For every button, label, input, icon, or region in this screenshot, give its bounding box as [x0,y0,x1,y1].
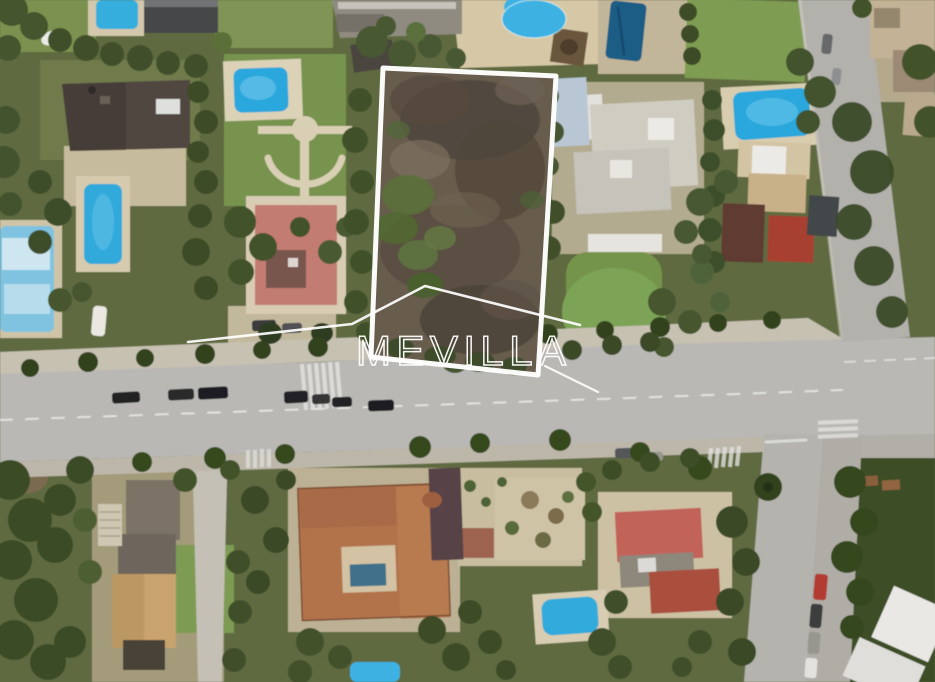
tree [674,220,698,244]
pool [541,596,599,636]
garden-path [258,126,352,134]
tree [28,230,52,254]
tree [478,630,502,654]
palm-tree [195,344,215,364]
blhouse-roof-shade [112,574,144,648]
hedge [194,110,218,134]
hedge [48,28,72,52]
tree [241,486,269,514]
tree [212,32,232,52]
plot-tree [374,212,418,244]
palm-tree [136,349,154,367]
tree [496,660,516,680]
blhouse-roof-upper [126,480,180,540]
tree [343,209,369,235]
tree [276,470,296,490]
tree [688,630,712,654]
tree [73,508,97,532]
garden-bush [535,532,551,548]
garden-dark-roof [428,467,463,560]
tree [588,628,616,656]
hedge [602,335,622,355]
tree [350,250,374,274]
pool-shine [92,194,114,250]
pool [350,662,400,682]
lawn-top [215,0,333,48]
blhouse-steps [98,504,122,546]
tree [20,12,48,40]
white-villa-skylight [610,160,632,178]
garden-bush [562,491,574,503]
watermark-text: MEVILLA [356,327,572,374]
plot-tree [520,191,544,209]
hedge [702,90,722,110]
tree-canopy [836,204,872,240]
tree-canopy [850,150,894,194]
hedge [700,152,720,172]
aerial-scene: MEVILLA [0,0,935,682]
tree-canopy [876,296,908,328]
garden-bush [481,497,491,507]
palm-tree [308,337,328,357]
tree [672,657,692,677]
tree [446,48,466,68]
palm-tree [549,429,571,451]
tree [263,527,289,553]
tree [44,484,76,516]
redhouse-panel [807,195,840,237]
lap-pool [605,0,647,61]
car [284,390,309,403]
tree [66,456,94,484]
tree [48,288,72,312]
tree [850,508,878,536]
tree [834,466,866,498]
garden-bush [497,477,507,487]
hedge [184,54,208,78]
tree [732,548,760,576]
palm-tree [78,352,98,372]
parked-car [807,632,821,655]
tree [78,560,102,584]
white-villa-terrace [588,234,662,252]
hedge [127,45,153,71]
tree [846,578,874,606]
palapa-peak [560,39,578,55]
garden-path [300,140,309,202]
tree [290,217,310,237]
tree [608,655,632,679]
palm-tree [253,341,271,359]
tree [220,460,240,480]
tree [344,290,368,314]
pink-building-dot [288,258,298,267]
stop-line [766,440,806,442]
tree [376,16,396,36]
hedge [187,141,209,163]
hedge [703,119,725,141]
tree [226,550,250,574]
hedge [683,47,701,65]
tree [296,628,324,656]
tree [648,288,676,316]
hedge [194,276,218,300]
pool-cover [4,284,50,314]
tree [318,240,342,264]
blhouse-garage [123,640,165,670]
tree [692,244,712,264]
tree [328,645,352,669]
tree [348,88,372,112]
tree [246,570,270,594]
plot-scrub-dark [390,75,470,125]
white-van [91,305,108,336]
hedge [680,448,700,468]
tree [72,282,92,302]
villa2-court-pool [350,563,387,586]
tree [388,40,416,68]
palm-tree [409,436,431,458]
tree [406,22,426,42]
car [821,34,833,55]
villa1-skylight [156,99,180,114]
tree [249,233,277,261]
car [168,388,195,400]
tree [228,259,254,285]
tree [54,626,86,658]
chimney [88,86,96,94]
tree [173,468,197,492]
garden-bush [521,491,539,509]
plot-scrub-light [430,192,500,228]
hedge [681,25,699,43]
tree [796,110,820,134]
garden-bush [548,508,564,524]
hedge [602,460,622,480]
tree [786,48,814,76]
tree [442,643,470,671]
crosswalk-stripe [260,449,264,467]
tree [710,292,730,312]
tree [228,600,252,624]
garden-path-brick [462,528,494,558]
car [368,400,394,412]
tree [686,188,714,216]
hedge [100,42,124,66]
hedge [188,204,212,228]
car [198,386,229,400]
tree [714,170,738,194]
building-roof-edge [140,0,218,7]
tree [728,638,756,666]
crosswalk-stripe [246,450,250,468]
tree [342,127,368,153]
aerial-photo: MEVILLA [0,0,935,682]
villa1-vent [100,96,110,104]
hedge [73,35,99,61]
tree [840,615,864,639]
tree [582,502,602,522]
plot-tree [382,175,434,215]
redhouse-canopy [752,145,787,174]
pool-shine [240,76,276,100]
crosswalk-stripe [253,450,257,468]
hedge [156,51,180,75]
white-villa-skylight [648,118,674,140]
crosswalk-stripe [267,449,271,467]
plot-scrub-light [390,140,450,180]
garden-bush [505,521,519,535]
tree-canopy [832,102,872,142]
hedge [679,3,697,21]
plot-tree [424,226,456,250]
tree [350,170,374,194]
tree [458,600,482,624]
palm-core [763,482,773,492]
redhouse2-white [638,558,657,573]
palm-tree [275,444,295,464]
garden-gravel [495,478,585,560]
tree [222,648,246,672]
tree [831,541,863,573]
palm-tree [132,452,152,472]
planter [882,480,900,491]
car [312,394,330,405]
tree [576,472,596,492]
pool [96,0,138,29]
white-villa-lower-roof [573,148,671,215]
parked-car [804,658,817,679]
hedge [182,238,210,266]
hedge [194,170,218,194]
hedge [640,452,660,472]
palm-tree [709,314,727,332]
hedge [187,81,209,103]
garden-terracotta [422,492,442,508]
tree [37,527,73,563]
car [112,391,141,403]
parked-car [809,604,823,629]
palm-tree [470,433,490,453]
parked-car-red [813,574,828,601]
topright-roof-dark [874,8,900,28]
plot-tree [386,121,410,139]
tree-canopy [854,246,894,286]
tree [14,578,58,622]
tree [804,76,836,108]
garden-bush [464,480,476,492]
tree [418,616,446,644]
hedge [698,218,722,242]
building-roof-stripe [338,2,456,9]
tree [678,310,702,334]
tree [716,506,748,538]
tree [716,588,744,616]
redhouse2-hip [649,568,721,614]
car [332,397,352,408]
tree [28,170,52,194]
hedge [640,332,660,352]
tree [604,590,628,614]
tree [224,206,256,238]
palm-tree [21,359,39,377]
tree [44,198,72,226]
plot-scrub-light [495,75,545,105]
palm-tree [763,311,781,329]
pool-shine [746,98,798,126]
redhouse-dark-roof [721,203,765,262]
